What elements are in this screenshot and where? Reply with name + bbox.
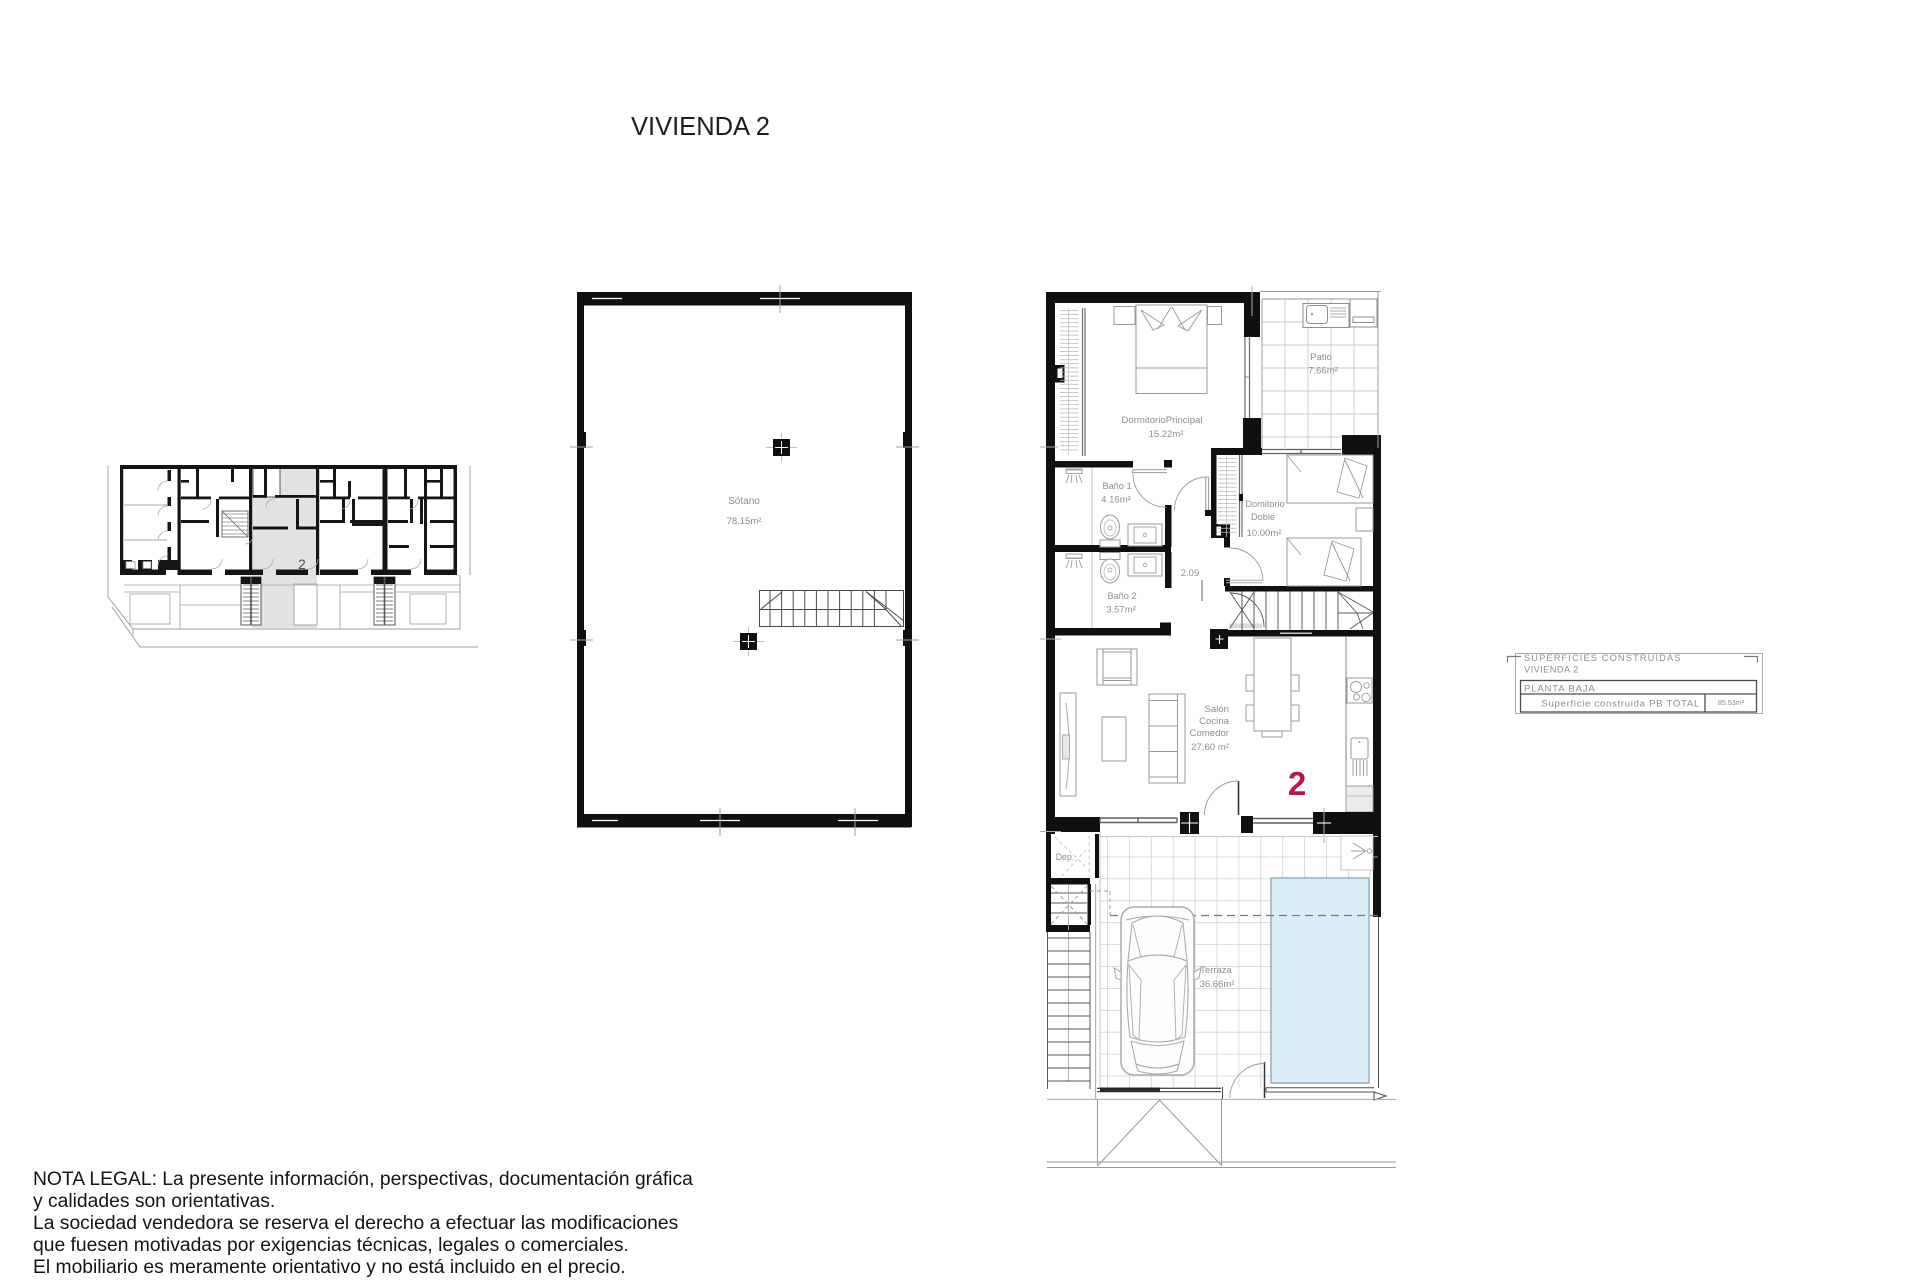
svg-text:Doble: Doble — [1251, 512, 1275, 522]
svg-text:3.57m²: 3.57m² — [1106, 605, 1136, 616]
svg-text:DormitorioPrincipal: DormitorioPrincipal — [1121, 415, 1202, 426]
svg-text:Comedor: Comedor — [1190, 728, 1230, 739]
svg-text:y calidades son orientativas.: y calidades son orientativas. — [33, 1191, 275, 1212]
svg-text:27.60 m²: 27.60 m² — [1191, 742, 1230, 753]
svg-text:Dep.: Dep. — [1056, 852, 1075, 862]
svg-text:El mobiliario es meramente ori: El mobiliario es meramente orientativo y… — [33, 1257, 626, 1278]
svg-text:VIVIENDA 2: VIVIENDA 2 — [631, 113, 770, 141]
svg-text:Terraza: Terraza — [1200, 965, 1232, 976]
svg-text:36.66m²: 36.66m² — [1200, 979, 1235, 990]
svg-text:4.16m²: 4.16m² — [1101, 495, 1131, 506]
svg-text:Baño 2: Baño 2 — [1107, 591, 1136, 601]
svg-text:Baño 1: Baño 1 — [1102, 481, 1131, 491]
svg-text:15.22m²: 15.22m² — [1149, 429, 1184, 440]
svg-text:2: 2 — [298, 557, 306, 572]
svg-text:2.09: 2.09 — [1181, 568, 1200, 579]
svg-text:PLANTA BAJA: PLANTA BAJA — [1524, 684, 1596, 695]
svg-text:Salón: Salón — [1204, 704, 1229, 715]
svg-text:Domitorio: Domitorio — [1245, 499, 1284, 509]
svg-text:78.15m²: 78.15m² — [727, 516, 762, 527]
svg-text:Cocina: Cocina — [1199, 716, 1230, 727]
svg-text:que fuesen motivadas por exige: que fuesen motivadas por exigencias técn… — [33, 1235, 629, 1256]
svg-text:Sótano: Sótano — [728, 496, 760, 507]
svg-text:La sociedad vendedora se reser: La sociedad vendedora se reserva el dere… — [33, 1213, 678, 1234]
svg-text:VIVIENDA 2: VIVIENDA 2 — [1524, 665, 1579, 675]
svg-text:7.66m²: 7.66m² — [1308, 366, 1338, 377]
svg-text:Superficie construida PB TOTAL: Superficie construida PB TOTAL — [1541, 699, 1700, 710]
svg-text:85.53m²: 85.53m² — [1718, 698, 1745, 707]
svg-text:SUPERFICIES CONSTRUIDAS: SUPERFICIES CONSTRUIDAS — [1524, 653, 1682, 663]
svg-text:2: 2 — [1288, 765, 1306, 802]
svg-text:Patio: Patio — [1310, 352, 1332, 363]
svg-text:10.00m²: 10.00m² — [1247, 528, 1282, 539]
svg-text:NOTA LEGAL: La presente inform: NOTA LEGAL: La presente información, per… — [33, 1169, 693, 1190]
